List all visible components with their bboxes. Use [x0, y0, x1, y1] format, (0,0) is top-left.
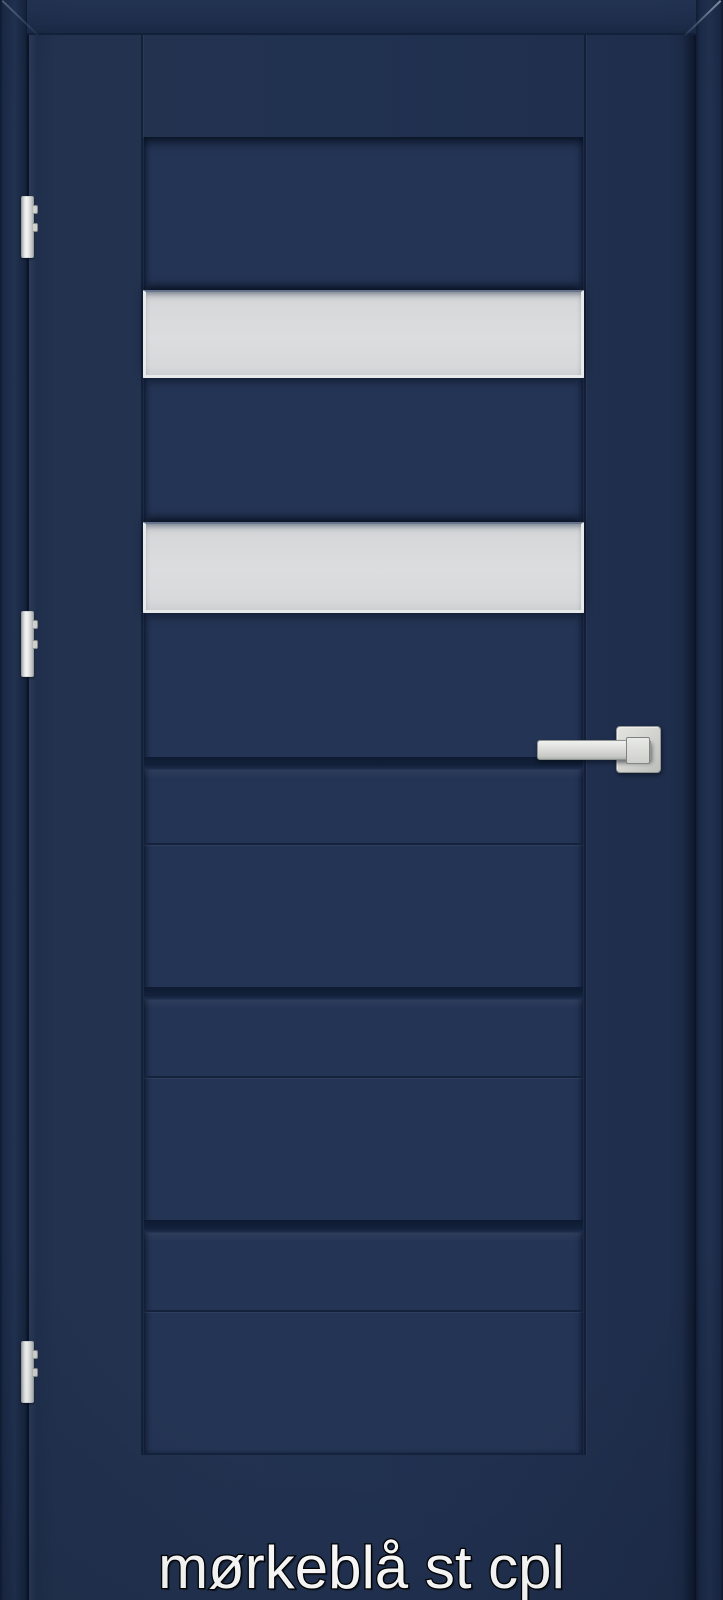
- hinge-tab: [33, 1350, 38, 1359]
- groove-strip-3: [144, 1220, 583, 1312]
- caption-label: mørkeblå st cpl: [0, 1538, 723, 1598]
- door-hinge-top: [21, 196, 34, 258]
- door-product-photo: mørkeblå st cpl: [0, 0, 723, 1600]
- groove-strip-2: [144, 987, 583, 1078]
- door-panel-column: [143, 137, 584, 1455]
- groove-strip-1: [144, 757, 583, 845]
- door-leaf: [27, 35, 696, 1600]
- hinge-tab: [33, 620, 38, 629]
- frosted-glass-strip-1: [143, 290, 584, 378]
- door-handle-neck: [626, 737, 650, 764]
- door-hinge-bottom: [21, 1341, 34, 1403]
- hinge-tab: [33, 640, 38, 649]
- door-frame-right-jamb: [696, 0, 723, 1600]
- door-hinge-middle: [21, 611, 34, 677]
- leaf-lock-edge: [682, 35, 694, 1600]
- door-frame-head: [0, 0, 723, 35]
- hinge-tab: [33, 205, 38, 214]
- frosted-glass-strip-2: [143, 522, 584, 613]
- hinge-tab: [33, 1368, 38, 1377]
- hinge-tab: [33, 223, 38, 232]
